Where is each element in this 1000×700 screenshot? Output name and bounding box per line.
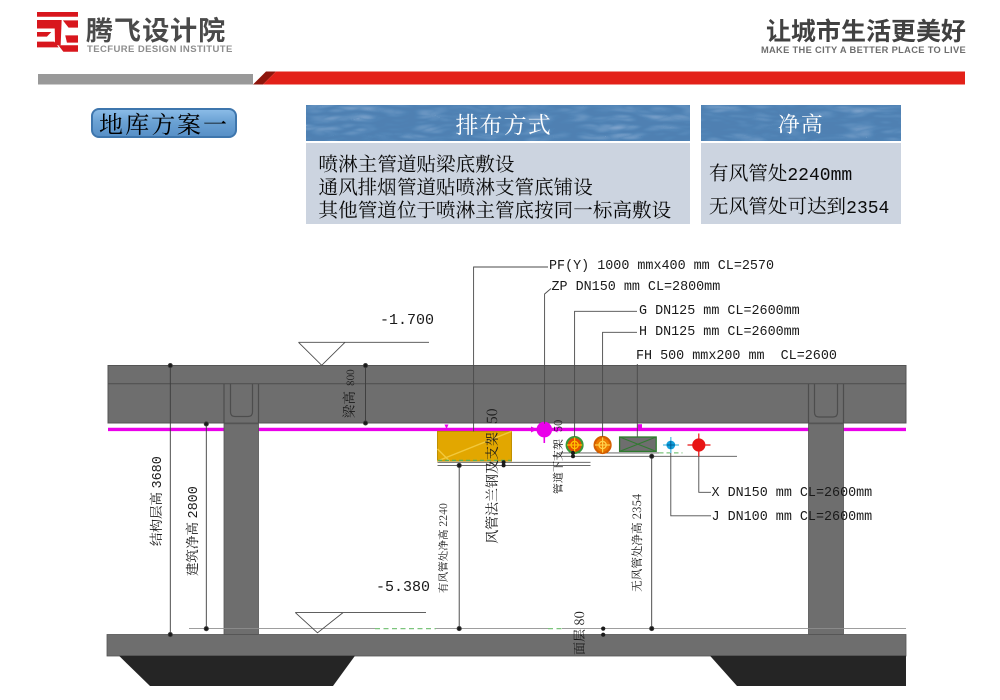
svg-text:X DN150 mm CL=2600mm: X DN150 mm CL=2600mm xyxy=(712,486,873,501)
svg-text:ZP DN150 mm CL=2800mm: ZP DN150 mm CL=2800mm xyxy=(552,280,721,295)
svg-text:-1.700: -1.700 xyxy=(380,312,434,329)
svg-text:FH 500 mmx200 mm CL=2600: FH 500 mmx200 mm CL=2600 xyxy=(636,349,837,364)
svg-text:管道下支架50: 管道下支架50 xyxy=(550,420,566,494)
svg-text:-5.380: -5.380 xyxy=(376,579,430,596)
svg-text:PF(Y) 1000 mmx400 mm CL=2570: PF(Y) 1000 mmx400 mm CL=2570 xyxy=(549,259,774,274)
svg-text:有风管处净高 2240: 有风管处净高 2240 xyxy=(436,503,451,593)
svg-text:H DN125 mm CL=2600mm: H DN125 mm CL=2600mm xyxy=(639,325,800,340)
svg-text:面层 80: 面层 80 xyxy=(569,611,588,655)
svg-text:结构层高 3680: 结构层高 3680 xyxy=(145,456,166,546)
svg-text:J DN100 mm CL=2600mm: J DN100 mm CL=2600mm xyxy=(712,510,873,525)
svg-text:建筑净高 2800: 建筑净高 2800 xyxy=(181,486,202,576)
svg-text:G DN125 mm CL=2600mm: G DN125 mm CL=2600mm xyxy=(639,304,800,319)
svg-text:无风管处净高 2354: 无风管处净高 2354 xyxy=(629,493,645,592)
